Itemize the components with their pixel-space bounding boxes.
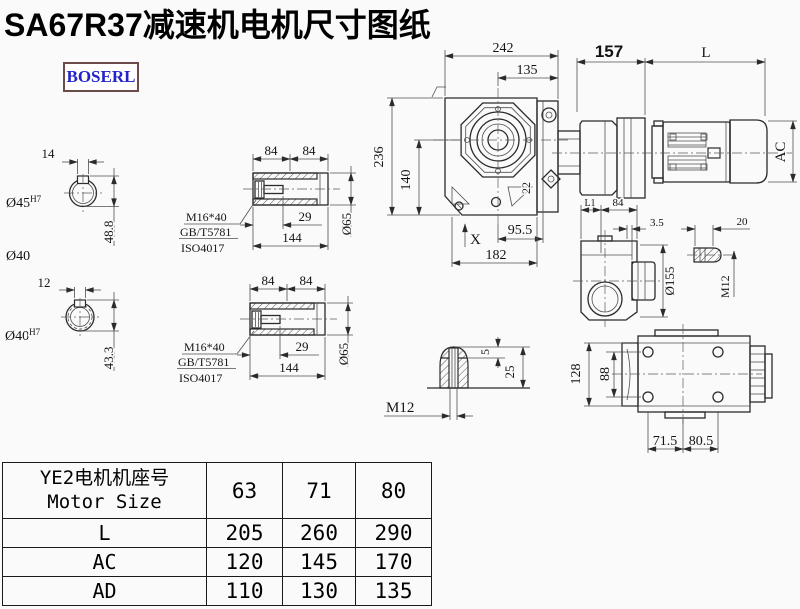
sleeve-view-a: 84 84 29 144 Ø65 M16*40 GB/T5781 ISO4017 — [179, 143, 356, 255]
dim-flange-dia: Ø155 — [662, 267, 677, 296]
roughness-symbol — [432, 87, 446, 97]
dim-182: 182 — [486, 248, 507, 263]
table-header-row: YE2电机机座号 Motor Size 63 71 80 — [3, 463, 432, 519]
dim-sleeve-dia-a: Ø65 — [339, 213, 354, 235]
label-shaft-od-a: Ø40 — [6, 249, 30, 264]
dim-key-25: 25 — [502, 366, 517, 379]
cell-l-80: 290 — [356, 519, 432, 548]
dim-sleeve-depth-b: 29 — [296, 339, 309, 354]
dim-l1: L1 — [584, 198, 595, 209]
dim-keyway-width-a: 14 — [42, 146, 56, 161]
dim-sleeve-len2-b: 84 — [300, 273, 314, 288]
table-size-71: 71 — [283, 463, 356, 519]
dim-sleeve-len1-a: 84 — [265, 143, 279, 158]
assembly-front-view: 242 135 236 140 22 95.5 182 X — [372, 41, 568, 267]
brand-logo-text: BOSERL — [67, 67, 136, 87]
bore-b-tolerance: H7 — [29, 327, 40, 337]
dim-22: 22 — [519, 182, 533, 194]
row-label-ad: AD — [3, 577, 207, 606]
label-bolt-b: M16*40 — [184, 340, 225, 354]
label-key-thread-m12: M12 — [386, 400, 414, 416]
label-std-iso-b: ISO4017 — [179, 371, 222, 385]
hollow-shaft-section-a: 14 48.8 Ø45H7 Ø40 — [6, 146, 119, 264]
dim-242: 242 — [493, 41, 514, 56]
dim-depth-b: 43.3 — [101, 347, 116, 370]
dim-95-5: 95.5 — [508, 223, 533, 238]
dim-side-84: 84 — [613, 197, 625, 209]
table-header-cell: YE2电机机座号 Motor Size — [3, 463, 207, 519]
dim-135: 135 — [517, 63, 538, 78]
table-size-63: 63 — [207, 463, 283, 519]
dim-sleeve-length-a: 144 — [282, 230, 302, 245]
cell-ad-63: 110 — [207, 577, 283, 606]
dim-71-5: 71.5 — [653, 434, 678, 449]
table-row-ac: AC 120 145 170 — [3, 548, 432, 577]
label-bolt-a: M16*40 — [186, 210, 227, 224]
dim-depth-a: 48.8 — [101, 221, 116, 244]
cell-ac-63: 120 — [207, 548, 283, 577]
row-label-ac: AC — [3, 548, 207, 577]
label-std-gb-b: GB/T5781 — [178, 355, 229, 369]
label-bore-a: Ø45H7 — [6, 194, 42, 211]
gearbox-side-view: L1 84 3.5 Ø155 20 M12 — [573, 197, 750, 327]
dim-157: 157 — [595, 42, 623, 61]
dim-sleeve-len2-a: 84 — [303, 143, 317, 158]
dim-sleeve-length-b: 144 — [279, 360, 299, 375]
dim-236: 236 — [372, 147, 387, 168]
dim-3-5: 3.5 — [650, 217, 664, 229]
dim-motor-length: L — [701, 45, 710, 61]
table-row-ad: AD 110 130 135 — [3, 577, 432, 606]
table-header-cn: YE2电机机座号 — [3, 467, 206, 491]
dim-20: 20 — [737, 216, 749, 228]
row-label-l: L — [3, 519, 207, 548]
page-title: SA67R37减速机电机尺寸图纸 — [4, 0, 431, 46]
table-row-l: L 205 260 290 — [3, 519, 432, 548]
dim-keyway-width-b: 12 — [38, 275, 51, 290]
dim-140: 140 — [399, 170, 414, 191]
table-size-80: 80 — [356, 463, 432, 519]
label-std-iso-a: ISO4017 — [181, 241, 224, 255]
cell-l-71: 260 — [283, 519, 356, 548]
cell-ad-80: 135 — [356, 577, 432, 606]
label-std-gb-a: GB/T5781 — [180, 225, 231, 239]
dim-sleeve-depth-a: 29 — [299, 209, 312, 224]
dim-sleeve-dia-b: Ø65 — [336, 343, 351, 365]
motor-size-table: YE2电机机座号 Motor Size 63 71 80 L 205 260 2… — [2, 462, 432, 606]
bore-b: Ø40 — [5, 329, 29, 344]
motor-side-view: 157 L AC — [552, 42, 797, 198]
sleeve-view-b: 84 84 29 144 Ø65 M16*40 GB/T5781 ISO4017 — [177, 273, 353, 385]
label-side-thread-m12: M12 — [718, 275, 732, 298]
cell-ac-80: 170 — [356, 548, 432, 577]
shaft-key-detail: 5 25 M12 — [384, 337, 530, 420]
gearbox-body — [445, 98, 537, 215]
cell-ac-71: 145 — [283, 548, 356, 577]
bore-a-tolerance: H7 — [30, 194, 41, 204]
fan-cowl — [730, 120, 767, 183]
dim-sleeve-len1-b: 84 — [262, 273, 276, 288]
cell-l-63: 205 — [207, 519, 283, 548]
hollow-shaft-section-b: 12 43.3 Ø40H7 — [5, 275, 119, 371]
dim-key-5: 5 — [478, 349, 492, 355]
brand-logo: BOSERL — [63, 62, 139, 92]
dim-80-5: 80.5 — [689, 434, 714, 449]
table-header-en: Motor Size — [3, 491, 206, 515]
gearbox-bottom-view: 128 88 71.5 80.5 — [569, 324, 772, 453]
cell-ad-71: 130 — [283, 577, 356, 606]
bore-a: Ø45 — [6, 196, 30, 211]
dim-128: 128 — [569, 364, 584, 385]
dim-motor-dia-ac: AC — [773, 142, 789, 163]
dim-88: 88 — [598, 367, 613, 381]
drawing-page: 14 48.8 Ø45H7 Ø40 12 43.3 Ø40H7 — [0, 0, 800, 609]
mark-x: X — [470, 232, 481, 248]
label-bore-b: Ø40H7 — [5, 327, 41, 344]
